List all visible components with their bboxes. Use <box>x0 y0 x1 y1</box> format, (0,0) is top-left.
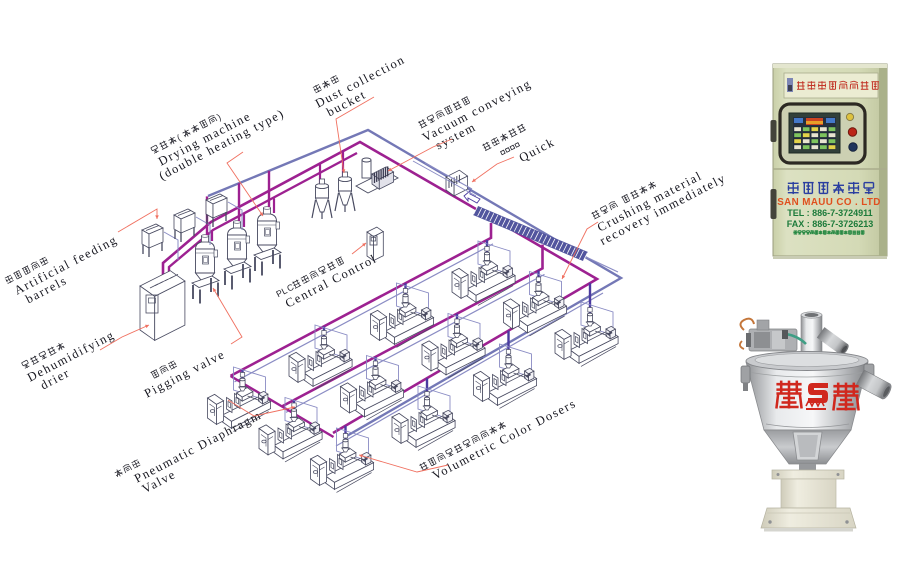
svg-text:TEL : 886-7-3724911: TEL : 886-7-3724911 <box>787 208 872 218</box>
svg-text:FAX : 886-7-3726213: FAX : 886-7-3726213 <box>787 219 874 229</box>
svg-text:SAN MAUU CO . LTD: SAN MAUU CO . LTD <box>777 197 881 208</box>
